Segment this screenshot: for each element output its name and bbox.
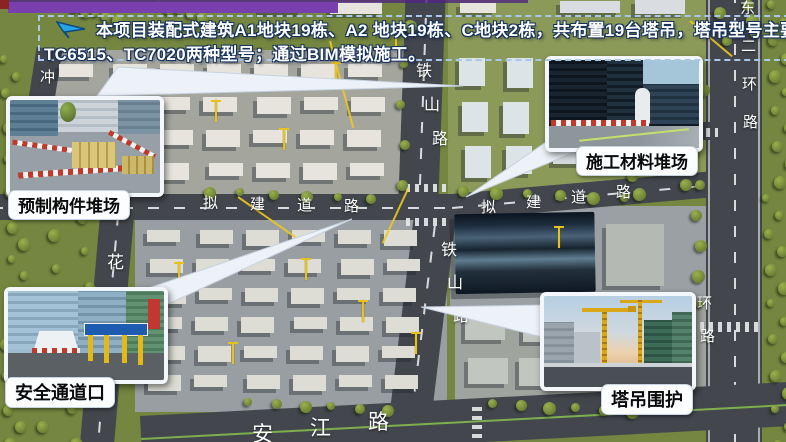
tree (48, 229, 61, 242)
building-block (207, 64, 241, 77)
road-name-label: 路 (743, 115, 758, 130)
building-block (383, 288, 416, 302)
slide: 铁山路铁山路拟建道路拟建道路东二环路环路花冲安江路 预制构件堆场 施工材料堆场 (0, 0, 786, 442)
project-summary-banner: 本项目装配式建筑A1地块19栋、A2 地块19栋、C地块2栋，共布置19台塔吊，… (38, 15, 786, 61)
tree (4, 438, 17, 442)
tree (571, 403, 580, 412)
building-block (194, 375, 227, 387)
building-block (304, 97, 338, 110)
road-name-label: 道 (297, 198, 312, 213)
building-block (244, 346, 277, 358)
building-block (635, 0, 685, 14)
building-block (303, 163, 337, 180)
tree (768, 334, 778, 344)
canopy-post (88, 335, 93, 361)
tree (488, 399, 497, 408)
material-yard-photo (545, 56, 703, 152)
building-block (290, 346, 323, 360)
tree (770, 370, 782, 382)
road-dongerhuan (706, 0, 762, 442)
road-name-label: 建 (250, 197, 265, 212)
tree (769, 70, 782, 83)
tree (60, 102, 76, 122)
building-block (382, 346, 415, 358)
road-name-label: 环 (742, 77, 757, 92)
cement-silo (635, 88, 650, 124)
building-block (196, 259, 229, 275)
building-block (385, 375, 418, 389)
building-block (300, 130, 334, 145)
tree (37, 421, 49, 433)
building-block (341, 259, 374, 275)
tree (458, 186, 469, 197)
tree (7, 222, 19, 234)
building-block (386, 317, 419, 333)
building-block (113, 64, 147, 79)
canopy-post (122, 335, 127, 363)
tree (366, 194, 376, 204)
building-block (348, 64, 382, 77)
tree (15, 421, 27, 433)
canopy-post (104, 335, 109, 363)
canopy-post (138, 335, 143, 365)
road-name-label: 建 (526, 195, 541, 210)
crane-fence-photo (540, 292, 696, 391)
road-name-label: 拟 (203, 196, 218, 211)
building-block (195, 317, 228, 331)
callout-label-safety: 安全通道口 (5, 377, 115, 408)
building-block (254, 64, 288, 79)
tree (0, 55, 8, 63)
corner-square (0, 0, 9, 9)
road-name-label: 拟 (481, 200, 496, 215)
crane-marker (215, 100, 217, 122)
road-name-label: 冲 (40, 70, 55, 85)
crane-marker (415, 332, 417, 354)
building-block (200, 230, 233, 244)
tree (762, 194, 770, 202)
building-block (246, 230, 279, 246)
building-block (503, 102, 529, 134)
tower-crane-counterweight (628, 306, 636, 312)
banner-text-1: 本项目装配式建筑A1地块19栋、A2 地块19栋、C地块2栋，共布置19台塔吊，… (96, 21, 786, 40)
precast-stack (72, 142, 116, 168)
road-name-label: 山 (424, 98, 440, 114)
tree (775, 211, 784, 220)
building-block (160, 64, 194, 81)
tree (396, 100, 405, 109)
tree (81, 247, 89, 255)
warehouse-building (454, 212, 595, 294)
building-block (242, 259, 275, 271)
tree (516, 400, 527, 411)
crosswalk (406, 184, 446, 192)
road-name-label: 花 (107, 254, 124, 271)
crane-marker (178, 262, 180, 284)
building-block (387, 259, 420, 271)
building-block (206, 130, 240, 147)
highrise-tower (643, 84, 699, 124)
building-block (465, 316, 505, 340)
road-name-label: 路 (368, 412, 389, 433)
banner-line-1: 本项目装配式建筑A1地块19栋、A2 地块19栋、C地块2栋，共布置19台塔吊，… (44, 19, 782, 44)
callout-label-crane: 塔吊围护 (601, 384, 693, 415)
building-block (468, 358, 508, 384)
tree (633, 188, 646, 201)
tower-crane-mast (602, 308, 607, 366)
crane-marker (362, 300, 364, 322)
road-name-label: 铁 (441, 243, 457, 259)
green-glass-building (672, 312, 692, 368)
highrise-tower (549, 60, 607, 124)
building-block (159, 130, 193, 145)
tree (334, 193, 342, 201)
building-block (293, 375, 326, 391)
building-block (198, 346, 231, 362)
tree (12, 72, 21, 81)
crane-marker (232, 342, 234, 364)
building-block (606, 224, 664, 286)
tree (772, 141, 783, 152)
road-name-label: 路 (700, 329, 715, 344)
building-block (209, 163, 243, 176)
accent-bar (8, 2, 338, 13)
building-block (339, 375, 372, 387)
precast-stack (122, 156, 154, 174)
building-block (59, 64, 93, 77)
tree (18, 238, 31, 251)
building-block (147, 230, 180, 242)
banner-text-2: TC6515、TC7020两种型号；通过BIM模拟施工。 (44, 45, 426, 64)
road-name-label: 铁 (416, 64, 432, 80)
crane-marker (305, 258, 307, 280)
building-block (384, 230, 417, 246)
crane-marker (558, 226, 560, 248)
tree (543, 402, 556, 415)
crosswalk (472, 406, 482, 438)
callout-label-precast: 预制构件堆场 (8, 190, 130, 220)
building-block (301, 64, 335, 81)
road-name-label: 路 (344, 199, 359, 214)
building-block (247, 375, 280, 389)
building-block (338, 230, 371, 244)
crane-marker (283, 128, 285, 150)
tree (52, 264, 61, 273)
tree (774, 176, 786, 189)
building-block (350, 163, 384, 176)
building-block (337, 288, 370, 300)
green-glass-building (644, 320, 672, 368)
building-block (294, 317, 327, 329)
tree (764, 229, 774, 239)
tower-crane-mast (638, 300, 642, 366)
background-building (10, 100, 58, 136)
hoist-cage (148, 299, 160, 329)
tree (771, 106, 780, 115)
tree (300, 401, 312, 413)
building-block (245, 288, 278, 302)
road-name-label: 路 (453, 309, 469, 325)
building-block (462, 102, 488, 132)
residential-building (78, 291, 128, 353)
tree (771, 405, 779, 413)
paper-plane-icon (56, 19, 86, 44)
tree (778, 282, 786, 295)
precast-yard-photo (6, 96, 164, 197)
tree (8, 255, 16, 263)
road-name-label: 路 (432, 132, 448, 148)
tree (780, 317, 786, 326)
white-tent (34, 331, 78, 349)
building-block (465, 146, 491, 178)
road-name-label: 山 (447, 276, 463, 292)
building-block (351, 97, 385, 112)
tree (781, 352, 786, 363)
building-block (291, 288, 324, 304)
building-block (292, 230, 325, 242)
tree (355, 404, 365, 414)
road-name-label: 环 (697, 296, 712, 311)
road-name-label: 路 (616, 185, 631, 200)
gray-building (544, 322, 574, 368)
building-block (256, 163, 290, 178)
tree (777, 246, 786, 257)
tree (782, 88, 786, 96)
tree (692, 270, 705, 283)
building-block (340, 317, 373, 331)
building-block (336, 346, 369, 362)
tree (767, 299, 775, 307)
safety-gate-photo (4, 287, 168, 384)
building-block (347, 130, 381, 147)
background-building (118, 100, 160, 134)
road-name-label: 安 (252, 424, 273, 442)
road-name-label: 江 (310, 418, 331, 439)
road-name-label: 东 (740, 1, 755, 16)
building-block (199, 288, 232, 300)
tree (20, 271, 29, 280)
tree (695, 180, 705, 190)
tree (767, 0, 776, 9)
banner-line-2: TC6515、TC7020两种型号；通过BIM模拟施工。 (44, 44, 782, 65)
building-block (506, 146, 532, 174)
building-block (560, 1, 620, 13)
road-name-label: 道 (571, 190, 586, 205)
building-block (253, 130, 287, 143)
tree (269, 190, 279, 200)
building-block (257, 97, 291, 114)
tree (765, 264, 777, 276)
crosswalk (406, 218, 446, 226)
tower-crane-jib (582, 308, 632, 312)
callout-label-material: 施工材料堆场 (576, 146, 698, 176)
building-block (241, 317, 274, 333)
building-block (460, 3, 496, 13)
